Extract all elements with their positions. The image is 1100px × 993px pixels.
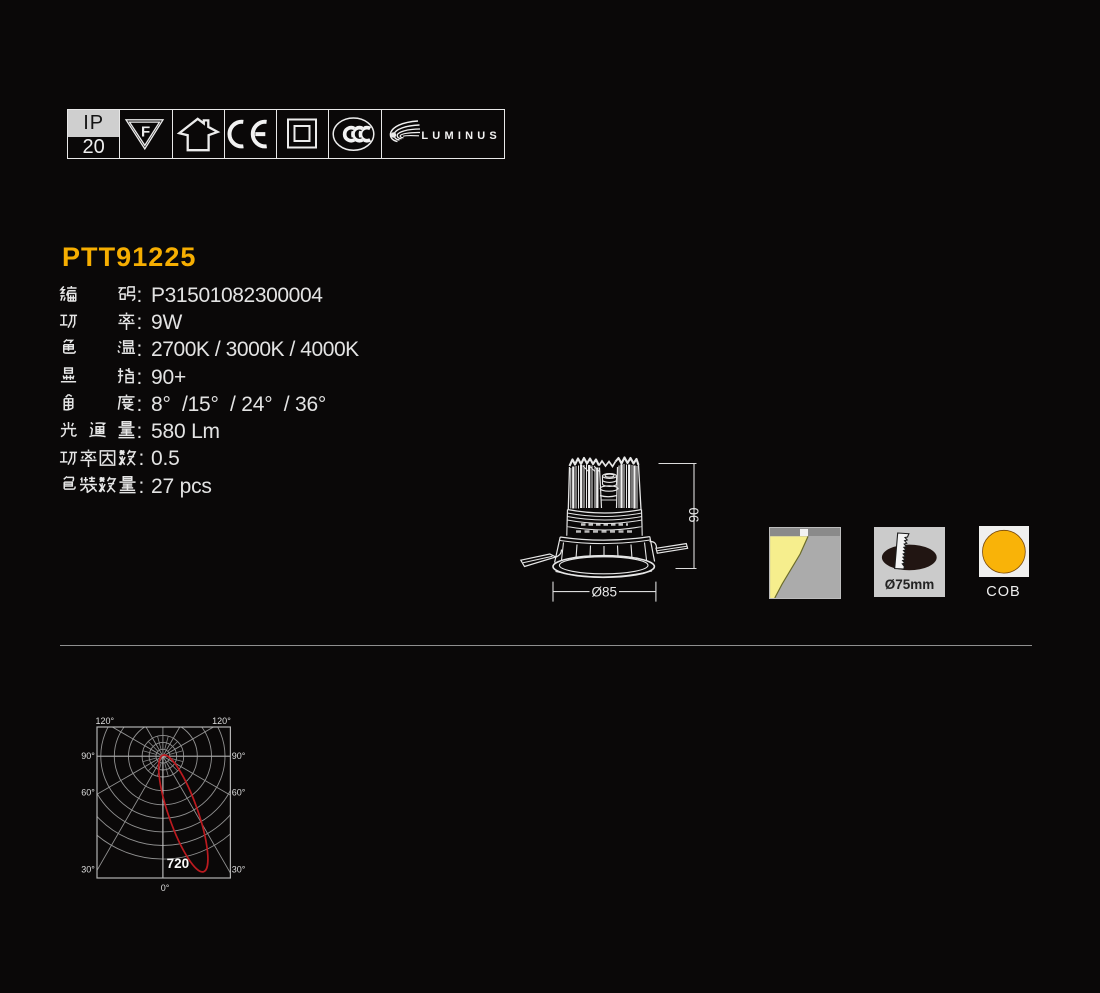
svg-text:720: 720: [167, 856, 190, 871]
svg-text:60°: 60°: [232, 788, 245, 798]
svg-text:Ø85: Ø85: [592, 584, 618, 599]
svg-text:120°: 120°: [96, 716, 115, 726]
svg-text:120°: 120°: [212, 716, 231, 726]
svg-text:F: F: [141, 123, 150, 140]
svg-text:90: 90: [687, 507, 702, 522]
svg-text:Ø75mm: Ø75mm: [885, 577, 934, 592]
svg-text:90°: 90°: [81, 751, 95, 761]
svg-text:60°: 60°: [81, 788, 95, 798]
svg-text:30°: 30°: [81, 865, 95, 875]
svg-text:90°: 90°: [232, 751, 245, 761]
svg-text:LUMINUS: LUMINUS: [421, 129, 501, 141]
svg-text:0°: 0°: [161, 883, 170, 893]
svg-text:30°: 30°: [232, 865, 245, 875]
